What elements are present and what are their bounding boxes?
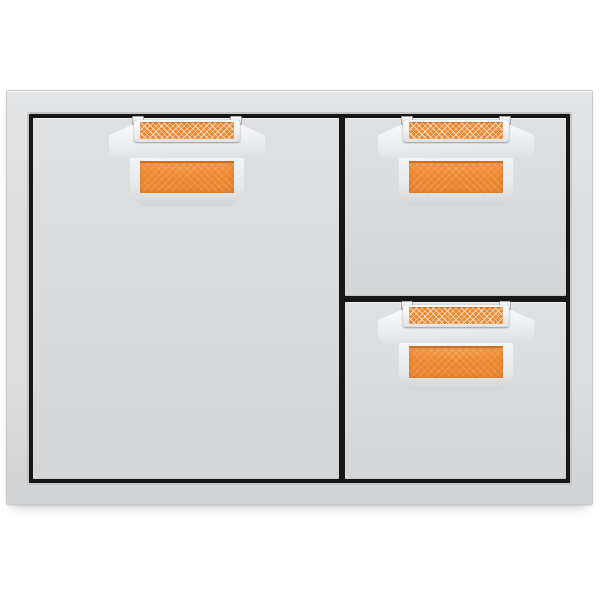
- handle-accent-strip: [403, 120, 509, 142]
- handle-accent-strip-insert: [409, 307, 503, 324]
- handle-accent-panel: [409, 161, 503, 193]
- handle-accent-strip-insert: [140, 122, 234, 139]
- cabinet-frame: [6, 90, 593, 505]
- handle-accent-strip: [134, 120, 240, 142]
- product-photo: [0, 0, 600, 600]
- handle-accent-panel: [409, 346, 503, 378]
- door-handle: [109, 116, 265, 206]
- top-drawer-handle: [378, 116, 534, 206]
- handle-lower-frame: [130, 158, 244, 206]
- bottom-drawer-handle: [378, 301, 534, 391]
- cabinet-opening: [29, 114, 570, 483]
- handle-lower-frame: [399, 158, 513, 206]
- handle-accent-strip: [403, 305, 509, 327]
- handle-accent-strip-insert: [409, 122, 503, 139]
- handle-lower-frame: [399, 343, 513, 391]
- handle-accent-panel: [140, 161, 234, 193]
